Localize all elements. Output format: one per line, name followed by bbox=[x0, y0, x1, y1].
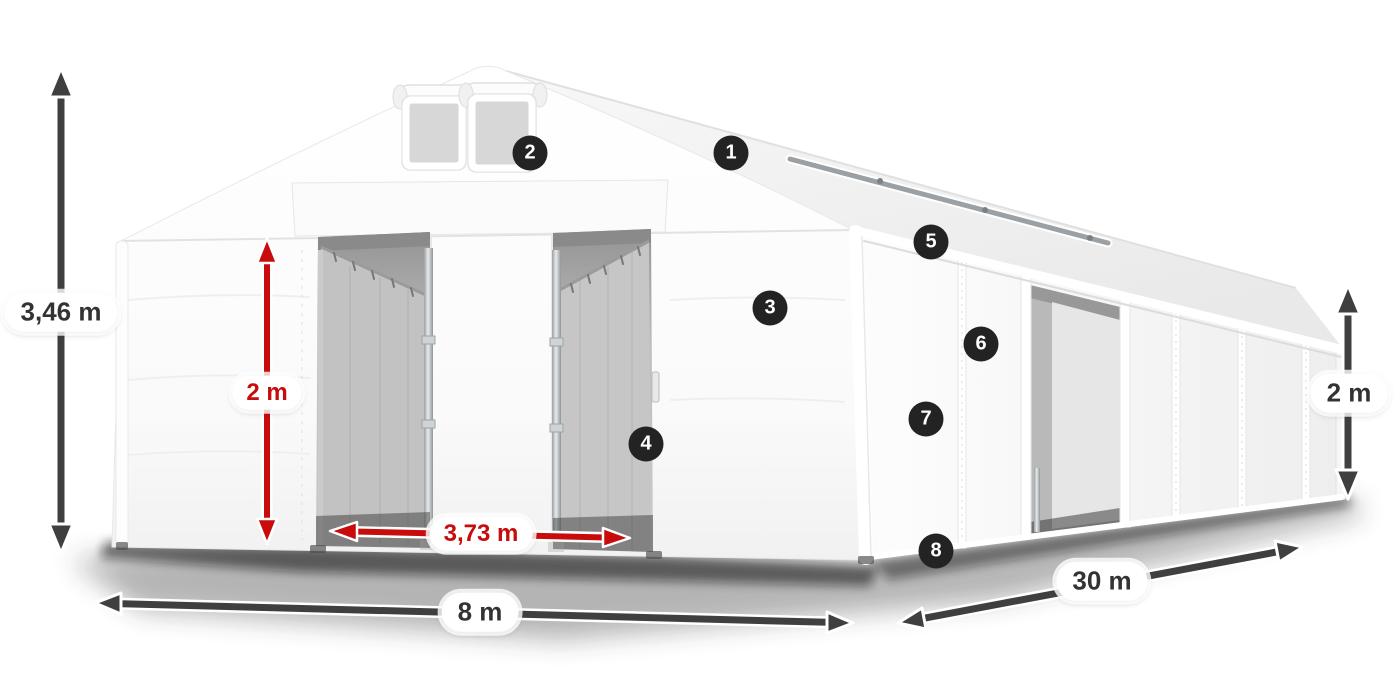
callout-badge-7[interactable]: 7 bbox=[909, 402, 944, 437]
callout-badge-6[interactable]: 6 bbox=[964, 327, 999, 362]
side-door-opening bbox=[1021, 273, 1130, 539]
callout-badge-8[interactable]: 8 bbox=[919, 534, 954, 569]
dim-side-length-label: 30 m bbox=[1056, 562, 1147, 601]
callout-badge-2[interactable]: 2 bbox=[513, 136, 548, 171]
callout-badge-3[interactable]: 3 bbox=[753, 291, 788, 326]
callout-badge-5[interactable]: 5 bbox=[914, 225, 949, 260]
dim-entrance-height-label: 2 m bbox=[232, 376, 301, 410]
dim-total-height-label: 3,46 m bbox=[5, 293, 118, 332]
front-door-opening-right bbox=[548, 229, 659, 552]
callout-badge-4[interactable]: 4 bbox=[629, 427, 664, 462]
front-door-opening-left bbox=[316, 232, 436, 550]
callout-badge-1[interactable]: 1 bbox=[714, 136, 749, 171]
dim-entrance-width-label: 3,73 m bbox=[430, 517, 533, 551]
dim-side-wall-height-label: 2 m bbox=[1311, 374, 1388, 413]
dim-front-width-label: 8 m bbox=[442, 593, 519, 632]
tent-illustration bbox=[0, 0, 1400, 700]
tent-dimensions-diagram: 3,46 m 2 m 3,73 m 8 m 30 m 2 m 1 2 3 4 5… bbox=[0, 0, 1400, 700]
